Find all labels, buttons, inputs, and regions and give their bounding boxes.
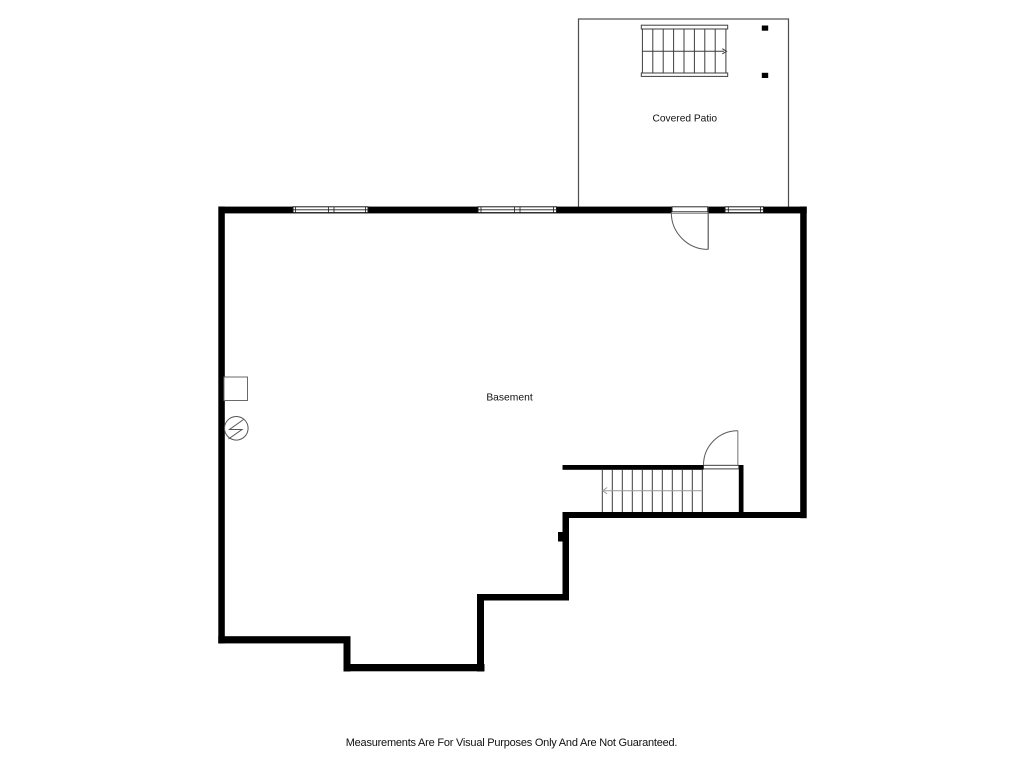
svg-text:Basement: Basement [486, 392, 533, 403]
svg-text:Covered Patio: Covered Patio [653, 113, 718, 124]
svg-text:Measurements Are For Visual Pu: Measurements Are For Visual Purposes Onl… [346, 737, 678, 749]
